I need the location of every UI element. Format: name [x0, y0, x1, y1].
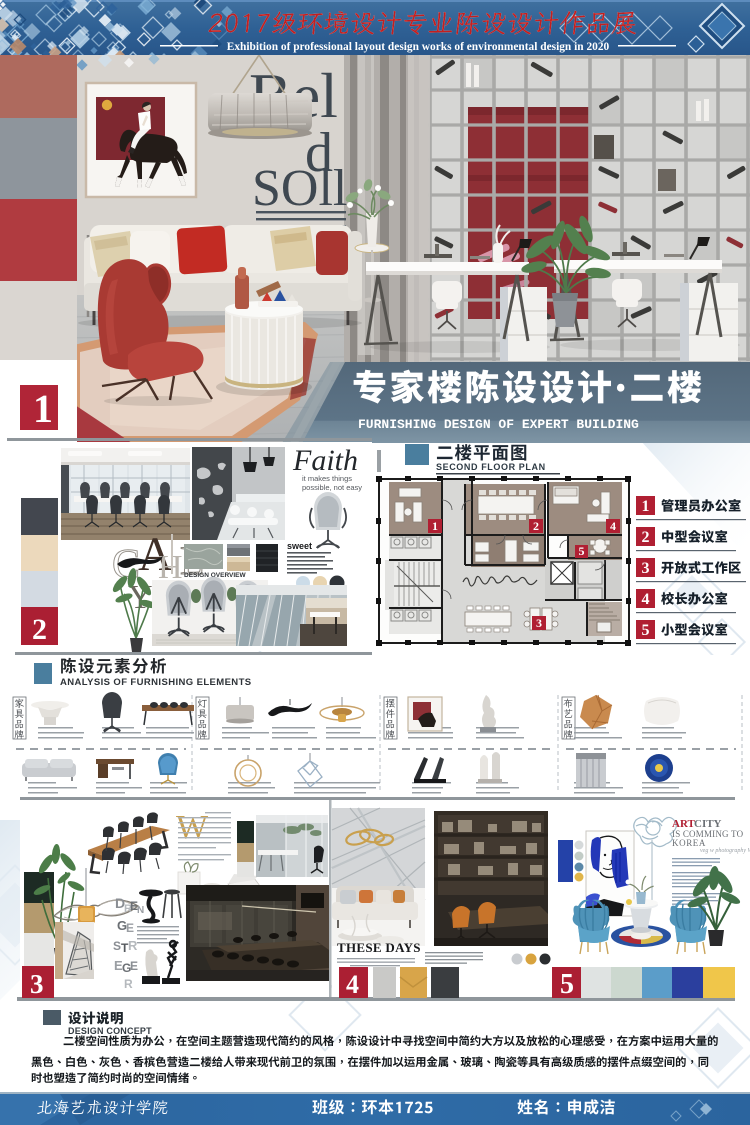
svg-text:1: 1 — [642, 498, 650, 515]
svg-text:Exhibition of professional lay: Exhibition of professional layout design… — [227, 41, 610, 53]
svg-text:5: 5 — [579, 544, 585, 558]
svg-text:SECOND FLOOR PLAN: SECOND FLOOR PLAN — [436, 462, 546, 472]
svg-text:Faith: Faith — [292, 444, 358, 477]
svg-text:N: N — [137, 905, 144, 916]
svg-text:S: S — [113, 939, 121, 953]
svg-text:sweet: sweet — [287, 541, 312, 551]
svg-text:2: 2 — [32, 613, 47, 646]
svg-text:5: 5 — [560, 969, 574, 1000]
svg-text:3: 3 — [536, 616, 542, 630]
svg-text:E: E — [126, 921, 134, 935]
svg-text:3: 3 — [30, 969, 44, 999]
svg-text:2: 2 — [533, 519, 539, 533]
svg-text:4: 4 — [346, 970, 359, 999]
svg-text:ANALYSIS OF FURNISHING ELEMENT: ANALYSIS OF FURNISHING ELEMENTS — [60, 677, 252, 688]
svg-text:KOREA: KOREA — [672, 838, 706, 848]
svg-text:it makes things: it makes things — [302, 474, 352, 483]
svg-text:possible, not easy: possible, not easy — [302, 483, 362, 492]
svg-text:veg w photography Wedding: veg w photography Wedding — [700, 848, 750, 854]
svg-text:THESE DAYS: THESE DAYS — [337, 940, 421, 955]
svg-text:5: 5 — [642, 622, 650, 639]
svg-text:FURNISHING DESIGN OF EXPERT BU: FURNISHING DESIGN OF EXPERT BUILDING — [358, 417, 639, 432]
svg-text:1: 1 — [432, 519, 438, 533]
svg-text:4: 4 — [610, 519, 616, 533]
svg-text:R: R — [124, 977, 133, 991]
svg-text:R: R — [128, 938, 138, 953]
svg-text:3: 3 — [642, 560, 650, 577]
svg-text:4: 4 — [642, 591, 650, 608]
svg-text:2: 2 — [642, 529, 650, 546]
svg-text:E: E — [130, 959, 138, 973]
svg-text:DESIGN CONCEPT: DESIGN CONCEPT — [68, 1026, 152, 1036]
svg-text:SOll: SOll — [252, 160, 347, 217]
